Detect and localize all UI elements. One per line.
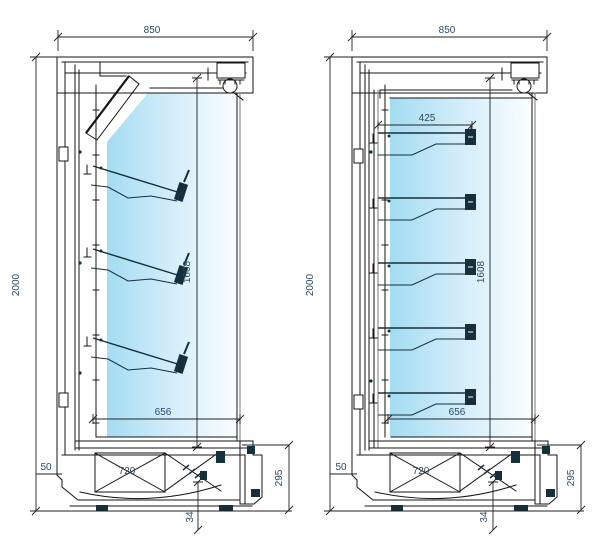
wall-bracket: [59, 147, 68, 161]
dim-display-height: 1608: [476, 260, 487, 283]
wall-bracket: [59, 393, 68, 407]
display-glass-area: [390, 98, 532, 437]
bolt: [369, 150, 372, 153]
bolt: [78, 371, 81, 374]
cross-struts: [460, 453, 516, 491]
dim-base-depth: 720: [119, 466, 136, 477]
dim-shelf-depth: 425: [419, 113, 436, 124]
drain-box: [216, 451, 225, 463]
dim-overall-width: 850: [144, 25, 161, 36]
dim-base-depth: 720: [413, 466, 430, 477]
dim-plinth-offset: 50: [40, 462, 52, 473]
wall-bracket: [354, 149, 363, 163]
dim-display-depth: 656: [449, 407, 466, 418]
display-glass-area: [107, 93, 237, 437]
bolt: [78, 150, 81, 153]
foot: [514, 505, 528, 511]
dim-base-height: 295: [274, 469, 285, 486]
foot: [219, 505, 233, 511]
dim-display-height: 1608: [182, 260, 193, 283]
ballast-unit: [502, 63, 539, 100]
cabinet-cross-sections: 850 2000 50 1608 656 720 295 34: [0, 0, 601, 542]
technical-drawing-page: 850 2000 50 1608 656 720 295 34: [0, 0, 601, 542]
dim-overall-width: 850: [439, 25, 456, 36]
bolt: [369, 379, 372, 382]
bolt: [78, 261, 81, 264]
dim-overall-height: 2000: [11, 273, 22, 296]
cross-struts: [165, 453, 221, 491]
dim-floor-clearance: 34: [479, 511, 490, 523]
drain-box: [511, 451, 520, 463]
base-assembly: [352, 437, 557, 511]
dim-display-depth: 656: [155, 407, 172, 418]
base-assembly: [57, 437, 262, 511]
dim-plinth-offset: 50: [335, 462, 347, 473]
wall-bracket: [354, 395, 363, 409]
left-cabinet-section: 850 2000 50 1608 656 720 295 34: [11, 25, 293, 534]
right-cabinet-section: 850 2000 425 50 1608 656 720 295 34: [305, 25, 585, 534]
foot: [96, 505, 108, 511]
foot: [391, 505, 403, 511]
dim-base-height: 295: [566, 469, 577, 486]
dim-floor-clearance: 34: [185, 511, 196, 523]
dim-overall-height: 2000: [305, 273, 316, 296]
